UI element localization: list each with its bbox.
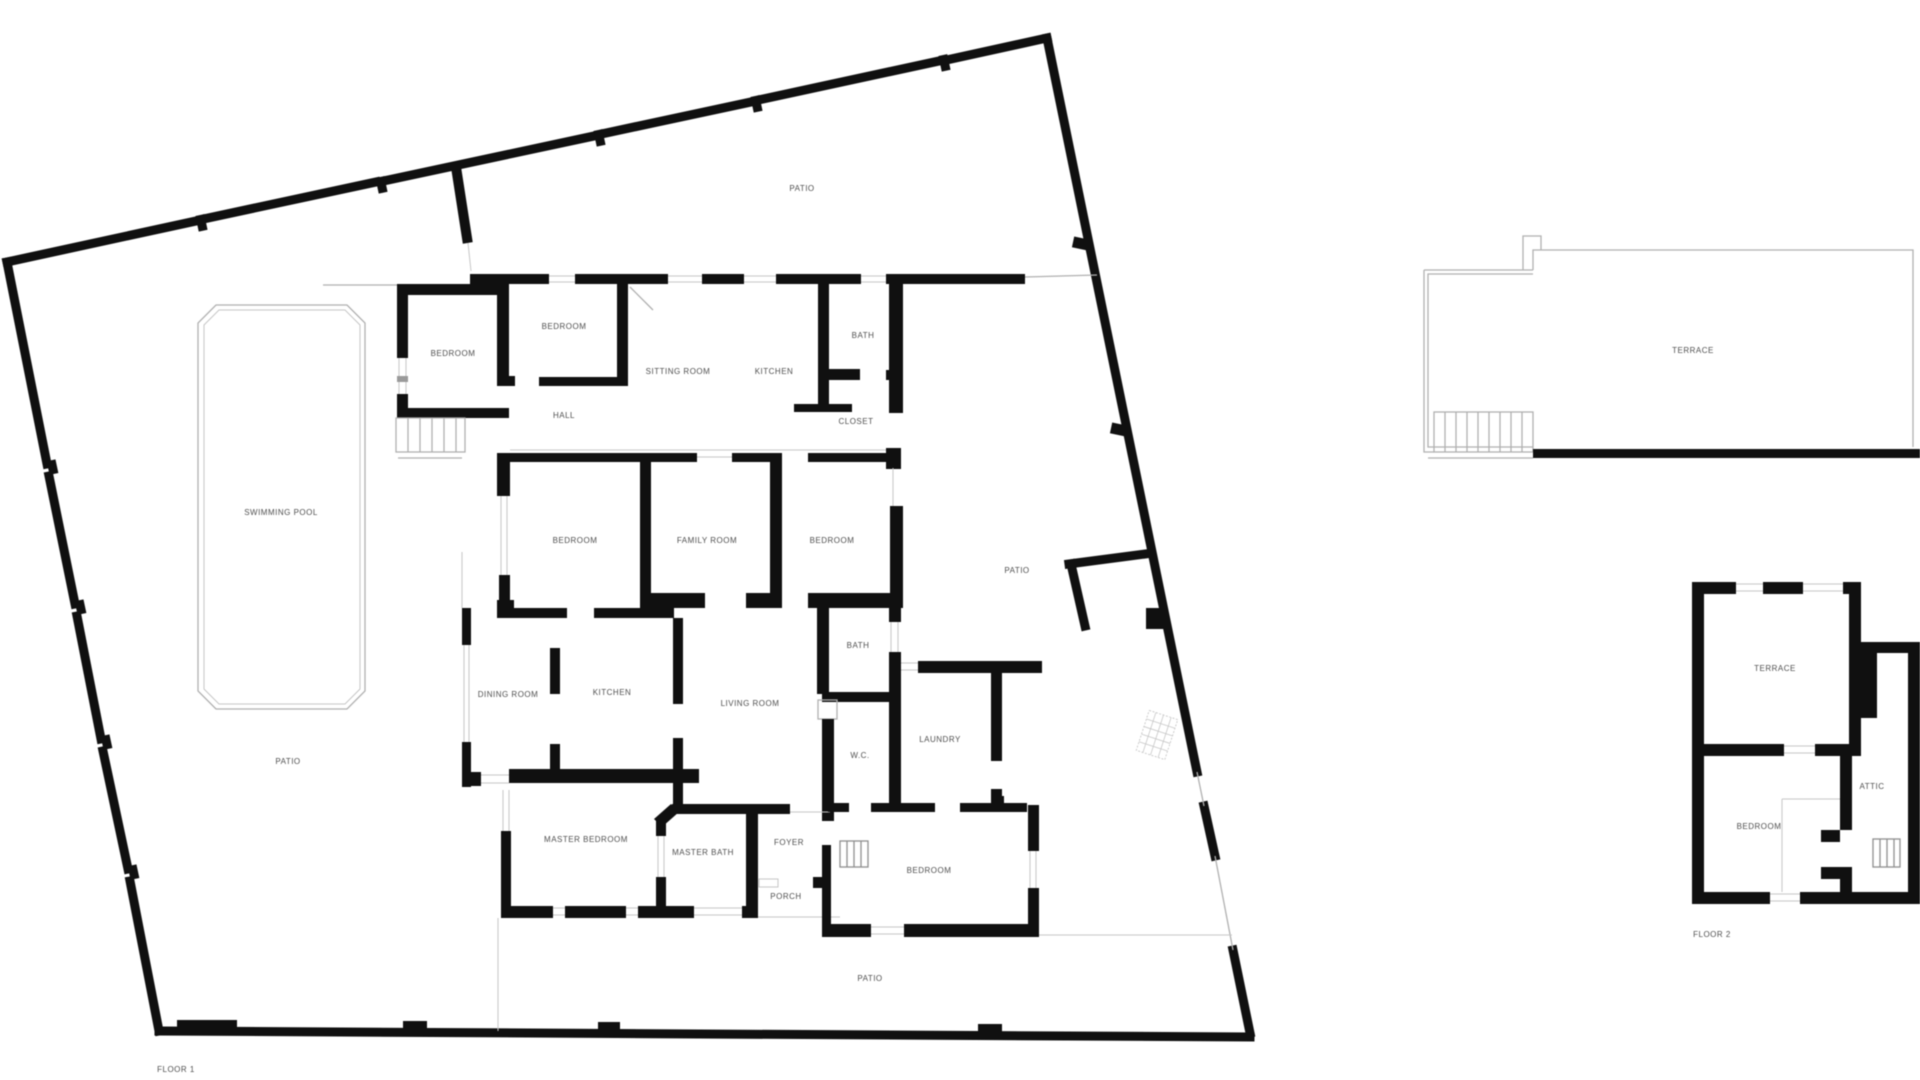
svg-text:LAUNDRY: LAUNDRY xyxy=(919,735,961,744)
svg-text:ATTIC: ATTIC xyxy=(1859,782,1884,791)
svg-text:BEDROOM: BEDROOM xyxy=(431,349,476,358)
svg-text:BEDROOM: BEDROOM xyxy=(553,536,598,545)
svg-text:BATH: BATH xyxy=(847,641,870,650)
svg-text:BEDROOM: BEDROOM xyxy=(542,322,587,331)
svg-text:PATIO: PATIO xyxy=(1004,566,1029,575)
svg-text:LIVING ROOM: LIVING ROOM xyxy=(721,699,780,708)
svg-text:HALL: HALL xyxy=(553,411,575,420)
svg-text:BEDROOM: BEDROOM xyxy=(907,866,952,875)
svg-text:CLOSET: CLOSET xyxy=(838,417,873,426)
svg-text:PATIO: PATIO xyxy=(275,757,300,766)
svg-text:BEDROOM: BEDROOM xyxy=(810,536,855,545)
svg-text:DINING ROOM: DINING ROOM xyxy=(478,690,539,699)
svg-text:FLOOR 2: FLOOR 2 xyxy=(1693,930,1731,939)
svg-text:PORCH: PORCH xyxy=(770,892,801,901)
svg-text:PATIO: PATIO xyxy=(789,184,814,193)
svg-text:FOYER: FOYER xyxy=(774,838,804,847)
svg-text:TERRACE: TERRACE xyxy=(1672,346,1714,355)
svg-text:FLOOR 1: FLOOR 1 xyxy=(157,1065,195,1074)
svg-text:SWIMMING POOL: SWIMMING POOL xyxy=(244,508,318,517)
svg-text:KITCHEN: KITCHEN xyxy=(755,367,794,376)
svg-text:BATH: BATH xyxy=(852,331,875,340)
svg-text:BEDROOM: BEDROOM xyxy=(1737,822,1782,831)
svg-text:MASTER BEDROOM: MASTER BEDROOM xyxy=(544,835,628,844)
svg-text:FAMILY ROOM: FAMILY ROOM xyxy=(677,536,737,545)
svg-text:W.C.: W.C. xyxy=(850,751,869,760)
svg-text:KITCHEN: KITCHEN xyxy=(593,688,632,697)
svg-text:SITTING ROOM: SITTING ROOM xyxy=(646,367,711,376)
svg-text:MASTER BATH: MASTER BATH xyxy=(672,848,734,857)
svg-text:PATIO: PATIO xyxy=(857,974,882,983)
svg-text:TERRACE: TERRACE xyxy=(1754,664,1796,673)
